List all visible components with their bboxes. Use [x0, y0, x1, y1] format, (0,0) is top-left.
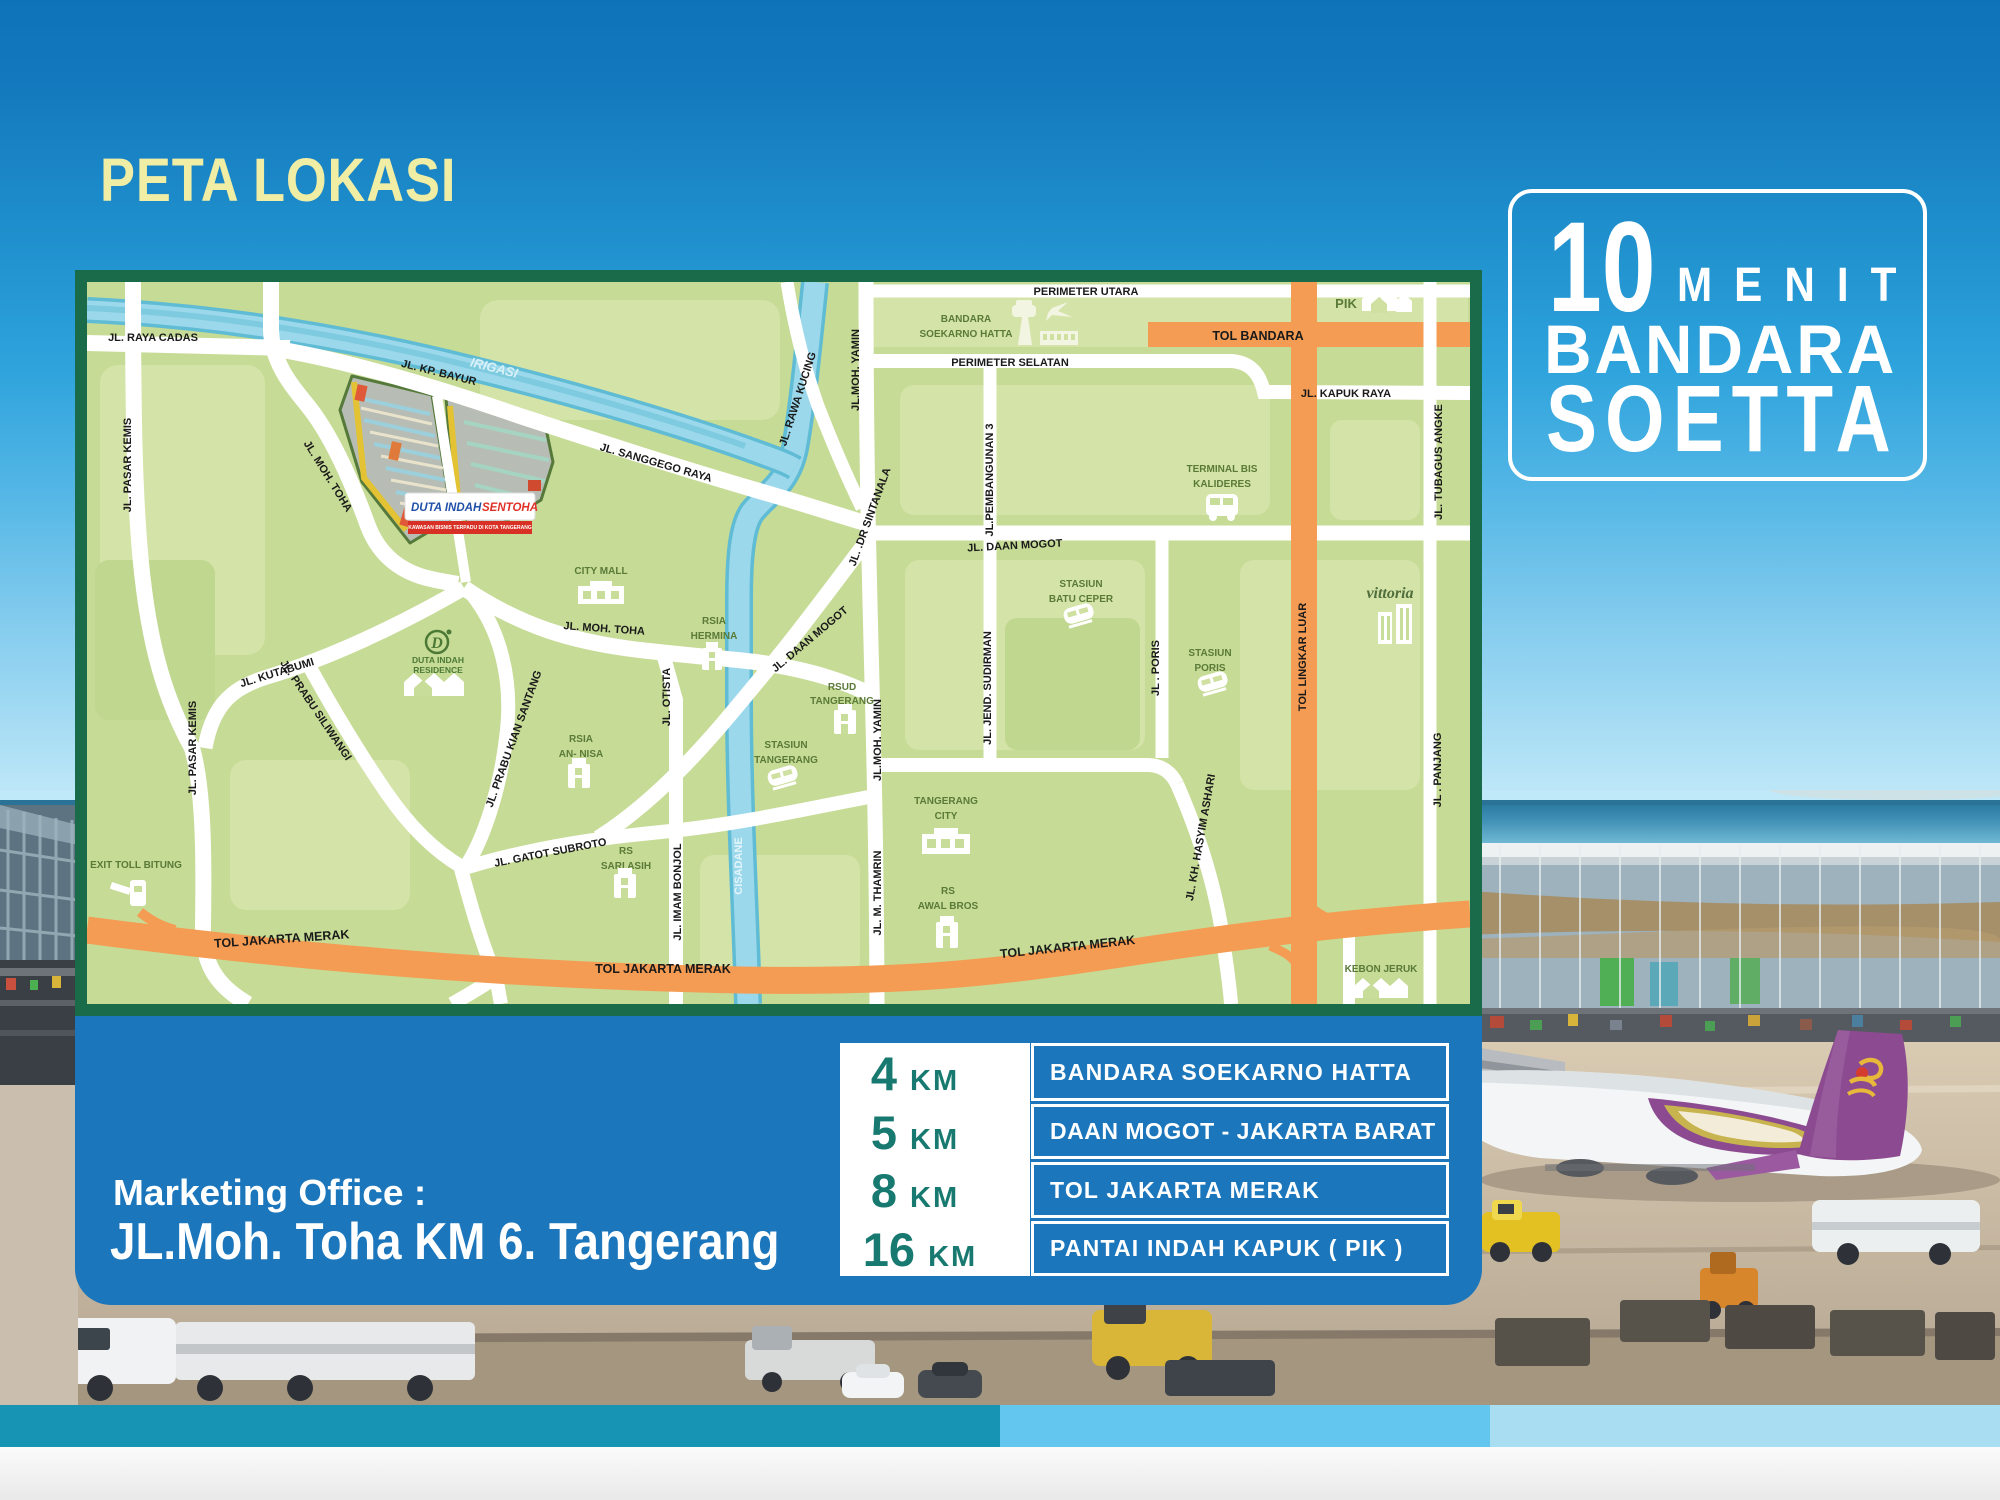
svg-text:JL. PASAR KEMIS: JL. PASAR KEMIS	[187, 701, 199, 796]
svg-text:TOL JAKARTA MERAK: TOL JAKARTA MERAK	[595, 962, 731, 976]
svg-text:DUTA INDAH: DUTA INDAH	[412, 655, 464, 665]
svg-text:SOEKARNO HATTA: SOEKARNO HATTA	[920, 329, 1013, 340]
svg-text:RS: RS	[941, 886, 955, 897]
svg-text:RSIA: RSIA	[702, 616, 726, 627]
svg-text:TERMINAL BIS: TERMINAL BIS	[1187, 464, 1258, 475]
svg-text:RESIDENCE: RESIDENCE	[413, 665, 463, 675]
svg-text:vittoria: vittoria	[1366, 585, 1413, 602]
svg-text:CITY MALL: CITY MALL	[574, 566, 627, 577]
svg-text:PERIMETER SELATAN: PERIMETER SELATAN	[951, 357, 1069, 369]
svg-text:TANGERANG: TANGERANG	[754, 755, 818, 766]
svg-text:KAWASAN BISNIS TERPADU DI KOTA: KAWASAN BISNIS TERPADU DI KOTA TANGERANG	[408, 525, 532, 531]
svg-text:KALIDERES: KALIDERES	[1193, 479, 1251, 490]
svg-text:AWAL BROS: AWAL BROS	[918, 901, 979, 912]
svg-text:PIK: PIK	[1335, 296, 1357, 311]
svg-text:JL.PEMBANGUNAN 3: JL.PEMBANGUNAN 3	[984, 423, 996, 536]
svg-text:EXIT TOLL BITUNG: EXIT TOLL BITUNG	[90, 860, 182, 871]
svg-text:KEBON JERUK: KEBON JERUK	[1345, 964, 1419, 975]
svg-text:BANDARA: BANDARA	[941, 314, 992, 325]
svg-text:BATU CEPER: BATU CEPER	[1049, 594, 1114, 605]
svg-text:RS: RS	[619, 846, 633, 857]
svg-text:JL. OTISTA: JL. OTISTA	[661, 668, 673, 727]
svg-text:JL. IMAM BONJOL: JL. IMAM BONJOL	[672, 843, 684, 940]
svg-text:RSUD: RSUD	[828, 682, 856, 693]
svg-text:D: D	[430, 635, 443, 652]
svg-text:JL. M. THAMRIN: JL. M. THAMRIN	[872, 850, 884, 935]
svg-text:JL. TUBAGUS ANGKE: JL. TUBAGUS ANGKE	[1433, 404, 1445, 520]
svg-text:SENTOHA: SENTOHA	[482, 502, 538, 514]
svg-text:RSIA: RSIA	[569, 734, 593, 745]
svg-text:JL.MOH. YAMIN: JL.MOH. YAMIN	[850, 329, 862, 411]
svg-text:TOL BANDARA: TOL BANDARA	[1212, 329, 1303, 343]
svg-text:HERMINA: HERMINA	[691, 631, 738, 642]
svg-text:TANGERANG: TANGERANG	[914, 796, 978, 807]
svg-text:JL.MOH. YAMIN: JL.MOH. YAMIN	[872, 699, 884, 781]
svg-text:PERIMETER UTARA: PERIMETER UTARA	[1034, 286, 1139, 298]
svg-text:JL. RAYA CADAS: JL. RAYA CADAS	[108, 332, 198, 344]
svg-text:DUTA INDAH: DUTA INDAH	[411, 502, 482, 514]
svg-text:CITY: CITY	[935, 811, 958, 822]
svg-text:JL. PASAR KEMIS: JL. PASAR KEMIS	[122, 418, 134, 513]
svg-text:STASIUN: STASIUN	[764, 740, 807, 751]
svg-text:JL . PANJANG: JL . PANJANG	[1432, 733, 1444, 808]
svg-text:JL. JEND. SUDIRMAN: JL. JEND. SUDIRMAN	[982, 631, 994, 745]
svg-text:JL. KAPUK RAYA: JL. KAPUK RAYA	[1301, 388, 1391, 400]
svg-text:TOL LINGKAR LUAR: TOL LINGKAR LUAR	[1297, 603, 1309, 711]
svg-text:CISADANE: CISADANE	[733, 837, 745, 894]
svg-text:JL . PORIS: JL . PORIS	[1150, 640, 1162, 696]
svg-text:STASIUN: STASIUN	[1059, 579, 1102, 590]
svg-text:STASIUN: STASIUN	[1188, 648, 1231, 659]
